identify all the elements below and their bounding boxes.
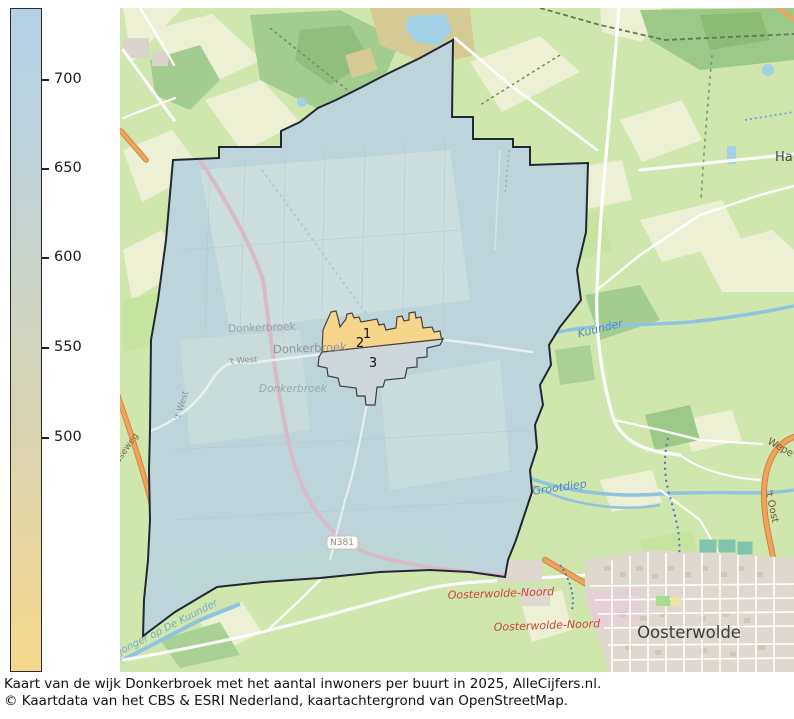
map-caption: Kaart van de wijk Donkerbroek met het aa… xyxy=(4,676,601,692)
haule-town-label: Hau xyxy=(775,150,794,165)
buurt-number-3: 3 xyxy=(369,356,377,371)
donkerbroek-town-label-1: Donkerbroek xyxy=(228,321,297,335)
colorbar-tick-mark xyxy=(42,168,49,170)
t-west-road-label-1: 't West xyxy=(228,355,259,367)
pond xyxy=(762,64,774,76)
colorbar-tick-label: 650 xyxy=(54,159,82,177)
map-canvas: KuunderGrootdiepTsjonger op De KuunderDo… xyxy=(120,8,794,672)
buurt-number-2: 2 xyxy=(356,336,364,351)
colorbar-tick-label: 500 xyxy=(54,428,82,446)
colorbar-tick-mark xyxy=(42,79,49,81)
oosterwolde-town-label: Oosterwolde xyxy=(637,623,741,642)
donkerbroek-town-label-3: Donkerbroek xyxy=(259,383,328,395)
donkerbroek-town-label-2: Donkerbroek xyxy=(273,340,348,357)
colorbar-tick-label: 550 xyxy=(54,338,82,356)
figure-canvas: 700650600550500 xyxy=(0,0,794,719)
colorbar-tick-mark xyxy=(42,437,49,439)
colorbar-gradient xyxy=(10,8,42,672)
map-attribution: © Kaartdata van het CBS & ESRI Nederland… xyxy=(4,693,568,709)
pond xyxy=(297,97,307,107)
colorbar-tick-label: 600 xyxy=(54,248,82,266)
sports-fields xyxy=(700,540,752,554)
colorbar-tick-mark xyxy=(42,257,49,259)
colorbar-tick-label: 700 xyxy=(54,70,82,88)
town-park xyxy=(656,596,670,606)
colorbar-tick-mark xyxy=(42,347,49,349)
n381-road-badge-label: N381 xyxy=(330,538,354,548)
colorbar-legend: 700650600550500 xyxy=(10,8,120,672)
